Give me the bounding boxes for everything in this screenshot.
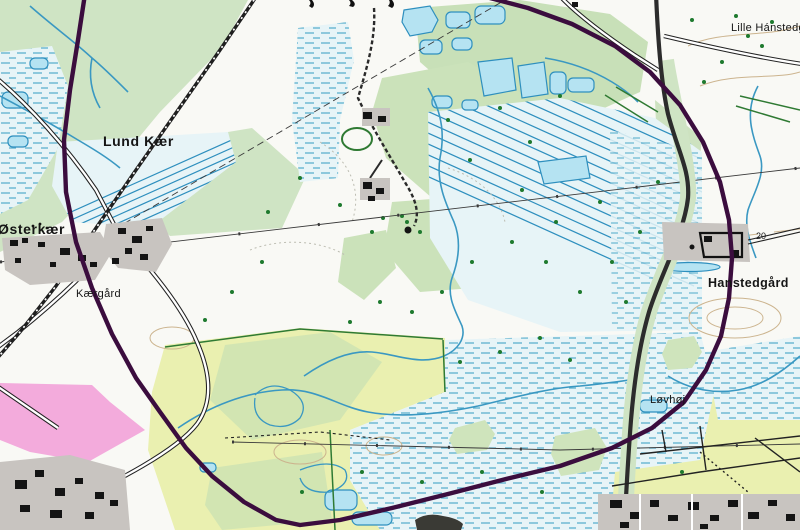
place-label-lund-kaer: Lund Kær [103, 133, 174, 149]
place-label-kaergaard: Kærgård [76, 288, 121, 300]
contour-label-20: 20 [756, 231, 766, 241]
place-label-lille-hanstedgaard: Lille Hánstedgård [731, 22, 800, 34]
map-canvas: Lund Kær Østerkær Kærgård Hanstedgård Lø… [0, 0, 800, 530]
place-label-oesterkaer: Østerkær [0, 221, 65, 237]
place-label-hanstedgaard: Hanstedgård [708, 276, 789, 290]
place-label-loevhoej: Løvhøj [650, 394, 685, 406]
topo-map: Lund Kær Østerkær Kærgård Hanstedgård Lø… [0, 0, 800, 530]
